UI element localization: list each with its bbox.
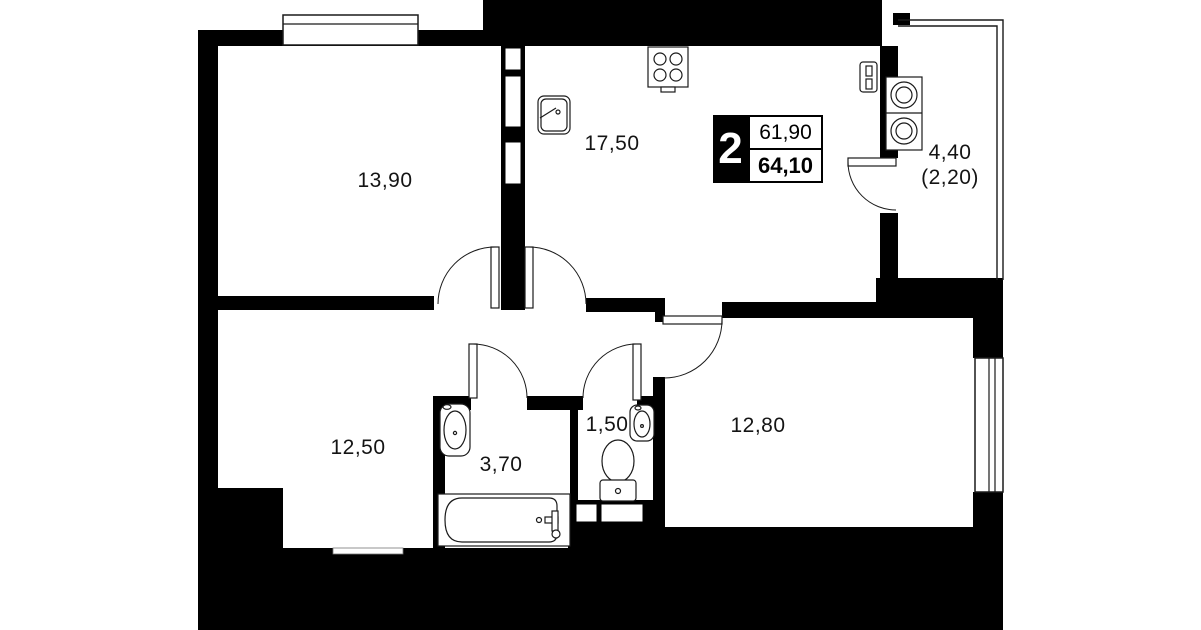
door-leaf-icon: [663, 316, 722, 324]
walls: [198, 0, 1003, 630]
door-leaf-icon: [633, 344, 641, 400]
shaft-niche-icon: [505, 76, 521, 127]
wall-mid-left: [198, 296, 434, 310]
wall-bedroom2-bottom: [663, 527, 1003, 548]
bathtub-icon: [438, 494, 570, 546]
toilet-icon: [600, 440, 636, 501]
apartment-info-badge: 2 61,90 64,10: [713, 115, 823, 183]
total-area-value: 64,10: [748, 149, 823, 183]
door-swing-icon: [583, 344, 637, 398]
rooms-count-badge: 2: [713, 115, 748, 183]
wall-wc-bedroom2-divider: [653, 377, 665, 500]
room-area-label-kitchen: 17,50: [584, 132, 639, 156]
room-area-label-bedroom-2: 12,80: [730, 414, 785, 438]
room-area-label-balcony: 4,40: [929, 141, 972, 165]
room-area-label-wc: 1,50: [586, 413, 629, 437]
wc-sink-icon: [630, 405, 654, 441]
door-swing-icon: [664, 320, 722, 378]
shaft-niche-icon: [601, 504, 643, 522]
entry-threshold-icon: [333, 548, 403, 554]
door-leaf-icon: [469, 344, 477, 398]
wall-balcony-corner: [893, 13, 910, 25]
shaft-niche-icon: [576, 504, 597, 522]
wall-right-above-window: [973, 312, 1003, 358]
wall-top-band: [483, 0, 882, 46]
wall-bottom-band: [198, 548, 1003, 630]
room-area-label-hallway: 12,50: [330, 436, 385, 460]
door-swing-icon: [529, 247, 586, 304]
window-icon: [283, 15, 418, 45]
living-area-value: 61,90: [748, 115, 823, 149]
washer-stack-icon: [886, 77, 922, 150]
kitchen-sink-icon: [538, 96, 570, 134]
door-swing-icon: [848, 162, 896, 210]
wall-kitchen-right-lower: [880, 213, 898, 278]
door-swing-icon: [473, 344, 527, 398]
wall-left: [198, 30, 218, 488]
stove-icon: [648, 47, 688, 92]
room-area-label-bedroom-1: 13,90: [357, 169, 412, 193]
door-swing-icon: [438, 247, 495, 304]
room-area-label-bathroom: 3,70: [480, 453, 523, 477]
bathroom-sink-icon: [440, 404, 470, 456]
room-area-label-balcony-coefficient: (2,20): [921, 166, 979, 190]
floorplan-drawing: [0, 0, 1201, 630]
door-leaf-icon: [525, 247, 533, 308]
door-leaf-icon: [848, 158, 896, 166]
floorplan: 13,90 17,50 12,50 3,70 1,50 12,80 4,40 (…: [0, 0, 1201, 630]
door-leaf-icon: [491, 247, 499, 308]
electrical-panel-icon: [860, 62, 877, 92]
shaft-niche-icon: [505, 142, 521, 184]
shaft-niche-icon: [505, 48, 521, 70]
area-values: 61,90 64,10: [748, 115, 823, 183]
wall-mid-center: [586, 298, 657, 312]
